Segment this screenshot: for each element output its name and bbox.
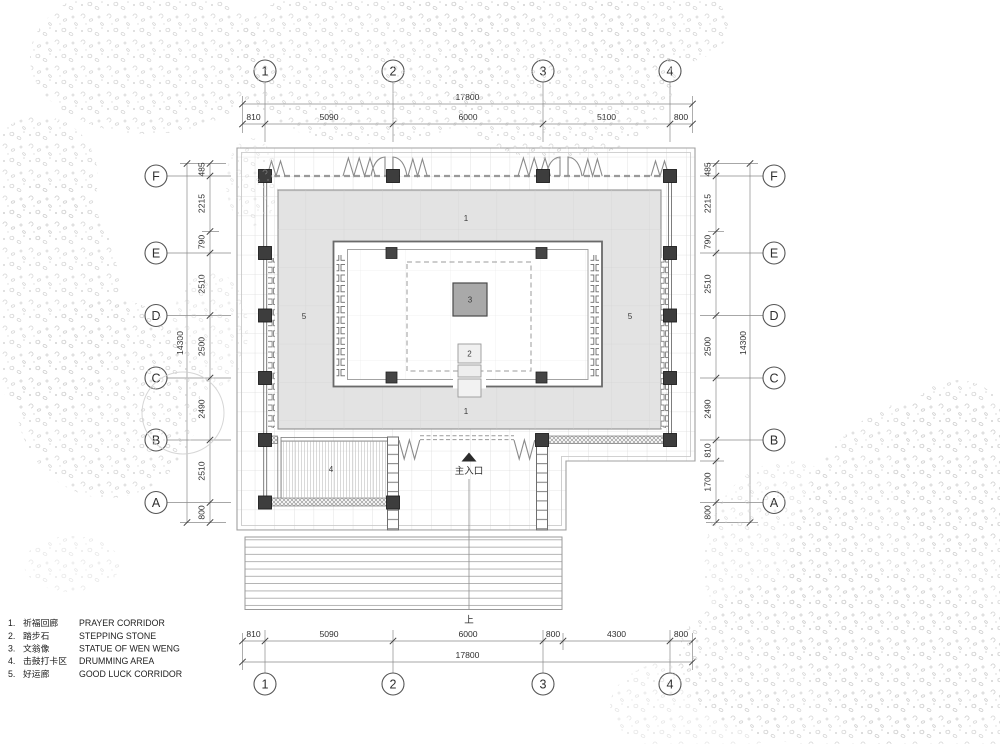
- stair-direction-label: 上: [464, 615, 474, 626]
- dim-seg: 4300: [607, 629, 626, 639]
- dim-seg: 2510: [197, 461, 207, 480]
- dim-seg: 800: [197, 505, 207, 520]
- entrance-label: 主入口: [455, 465, 484, 477]
- balustrade-right: [661, 258, 668, 428]
- dim-seg: 2490: [703, 399, 713, 418]
- legend-zh: 踏步石: [23, 630, 50, 641]
- wall-hatched: [548, 436, 669, 444]
- grid-bubble-E: E: [152, 247, 160, 261]
- entry-screen-right-rungs: [537, 437, 548, 530]
- dim-seg: 2215: [703, 194, 713, 213]
- good-luck-corridor-label-right: 5: [628, 312, 633, 321]
- wall-hatched: [259, 498, 399, 506]
- legend-no: 1.: [8, 618, 15, 628]
- vegetation-cluster: [24, 536, 120, 592]
- grid-bubble-B: B: [770, 434, 778, 448]
- grid-bubble-F: F: [770, 170, 778, 184]
- dim-overall-right: 14300: [738, 331, 748, 355]
- legend-en: GOOD LUCK CORRIDOR: [79, 669, 182, 679]
- legend-zh: 文翁像: [23, 643, 50, 654]
- vegetation-cluster: [226, 138, 278, 226]
- legend-zh: 祈福回廊: [23, 617, 58, 628]
- dim-seg: 2510: [703, 274, 713, 293]
- dim-overall-bottom: 17800: [456, 650, 480, 660]
- stair-treads: [245, 537, 562, 610]
- dim-seg: 800: [546, 629, 561, 639]
- dim-seg: 5090: [319, 629, 338, 639]
- right-grid-bubbles: F E D C B A: [763, 165, 785, 514]
- prayer-corridor-label-bottom: 1: [464, 407, 469, 416]
- drumming-area-label: 4: [329, 465, 334, 474]
- main-hall: 3 2: [334, 242, 603, 398]
- hall-lattice-left: [337, 255, 346, 379]
- hall-lattice-right: [591, 255, 600, 379]
- dim-seg: 810: [246, 629, 261, 639]
- legend-en: STATUE OF WEN WENG: [79, 644, 180, 654]
- dim-seg: 800: [674, 112, 689, 122]
- dim-seg: 810: [246, 112, 261, 122]
- grid-bubble-D: D: [769, 309, 778, 323]
- vegetation-cluster: [704, 461, 872, 671]
- legend-en: STEPPING STONE: [79, 631, 156, 641]
- legend-no: 4.: [8, 656, 15, 666]
- legend: 1. 祈福回廊 PRAYER CORRIDOR 2. 踏步石 STEPPING …: [8, 617, 182, 679]
- entry-screen-left-rungs: [388, 437, 399, 530]
- legend-en: DRUMMING AREA: [79, 656, 154, 666]
- grid-bubble-C: C: [769, 372, 778, 386]
- grid-bubble-1: 1: [262, 678, 269, 692]
- grid-bubble-A: A: [152, 496, 161, 510]
- floor-plan-drawing: 3 2: [0, 0, 1000, 744]
- bottom-dimension-texts: 17800 810 5090 6000 800 4300 800: [246, 629, 688, 660]
- dim-seg: 790: [197, 235, 207, 250]
- prayer-corridor-label-top: 1: [464, 214, 469, 223]
- legend-no: 5.: [8, 669, 15, 679]
- dim-seg: 800: [703, 505, 713, 520]
- right-dimension-texts: 14300 485 2215 790 2510 2500 2490 810 17…: [703, 162, 749, 520]
- good-luck-corridor-label-left: 5: [302, 312, 307, 321]
- dim-seg: 1700: [703, 472, 713, 491]
- legend-no: 3.: [8, 644, 15, 654]
- legend-en: PRAYER CORRIDOR: [79, 618, 165, 628]
- dim-seg: 485: [703, 162, 713, 177]
- dim-seg: 2500: [703, 337, 713, 356]
- stepping-stone-label: 2: [467, 350, 472, 359]
- statue-label: 3: [468, 296, 473, 305]
- dim-seg: 6000: [458, 629, 477, 639]
- legend-no: 2.: [8, 631, 15, 641]
- dim-seg: 810: [703, 443, 713, 458]
- dim-seg: 790: [703, 235, 713, 250]
- dim-seg: 485: [197, 162, 207, 177]
- balustrade-left: [268, 258, 275, 428]
- legend-zh: 击鼓打卡区: [23, 655, 67, 666]
- grid-bubble-3: 3: [540, 678, 547, 692]
- grid-bubble-2: 2: [390, 678, 397, 692]
- legend-zh: 好运廊: [23, 668, 50, 679]
- dim-seg: 2215: [197, 194, 207, 213]
- grid-bubble-F: F: [152, 170, 160, 184]
- vegetation-cluster: [30, 0, 266, 134]
- grid-bubble-E: E: [770, 247, 778, 261]
